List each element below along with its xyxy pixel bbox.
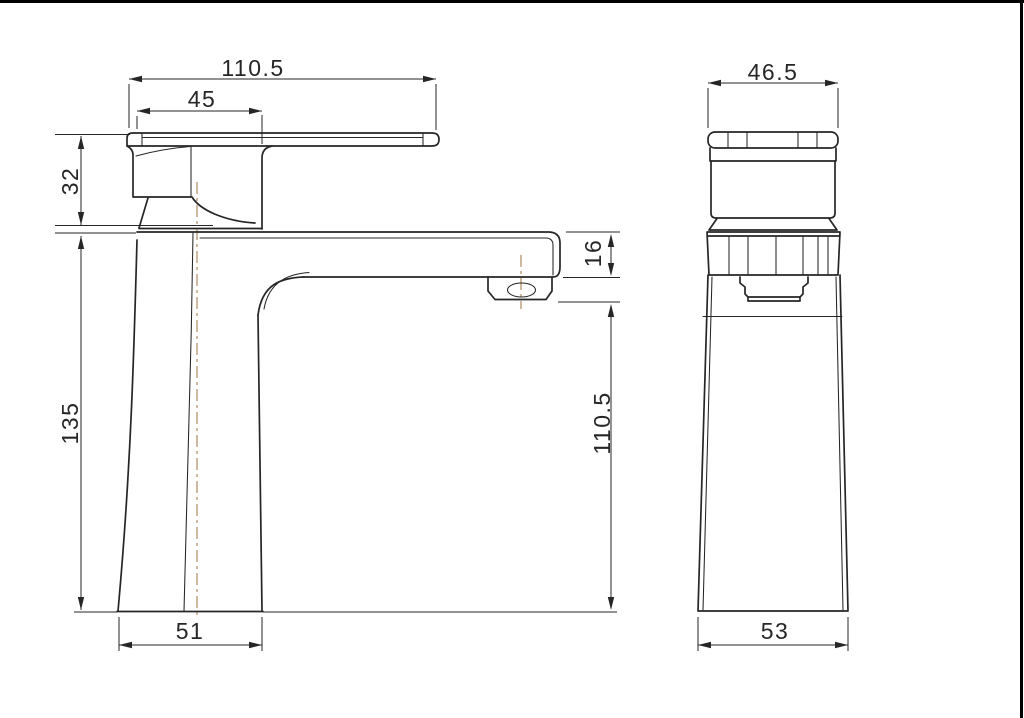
dim-arrow [423,76,436,82]
dim-arrow [78,136,84,149]
aerator-housing-outline [488,277,552,300]
side-lever-detail-lines [728,133,817,148]
dim-front-body-height-label: 135 [57,402,83,445]
dim-arrow [78,597,84,610]
dim-front-overall-width-label: 110.5 [221,55,284,81]
side-spout-ring-facets [729,236,828,275]
dim-arrow [78,212,84,225]
dim-arrow [825,80,838,86]
handle-base-right-edge [262,146,272,229]
spout-outline [137,232,560,277]
dim-arrow [119,642,132,648]
dim-arrow [137,108,150,114]
dim-front-handle-width-label: 45 [188,86,217,112]
handle-lever-detail-lines [142,133,423,146]
dim-arrow [708,80,721,86]
dim-side-overall-width-lines [708,83,838,128]
handle-lever-outline [127,133,439,146]
body-left-edge [118,240,137,611]
side-spout-recess [740,277,808,301]
handle-base-contour-lines [136,146,191,197]
drawing-sheet: 110.5 45 32 135 16 110.5 51 [0,0,1024,718]
cartridge-dome-outline [139,198,262,229]
body-right-edge [258,315,262,611]
dim-side-base-width-label: 53 [761,618,790,644]
dim-front-handle-height-label: 32 [57,167,83,196]
dim-arrow [78,236,84,249]
spout-inner-edge [200,238,553,275]
dim-front-base-width-label: 51 [176,618,205,644]
body-front-contour [184,233,193,611]
dim-arrow [608,304,614,317]
dim-front-spout-to-base-label: 110.5 [589,391,615,454]
faucet-dimension-drawing: 110.5 45 32 135 16 110.5 51 [0,0,1024,718]
dim-side-overall-width-label: 46.5 [748,59,799,85]
dim-arrow [698,642,711,648]
spout-fillet-outer [258,277,303,315]
dim-arrow [608,263,614,276]
side-handle-top-band [710,148,836,161]
dim-arrow [249,642,262,648]
side-body-inner-edges [703,277,843,610]
dim-arrow [249,108,262,114]
sheet-border-top [0,0,1024,3]
dim-arrow [608,234,614,247]
front-view [117,133,617,616]
dim-front-handle-width-lines [137,111,262,144]
sheet-border-right [1020,0,1023,718]
dim-arrow [835,642,848,648]
side-transition-collar [709,219,837,231]
dim-arrow [129,76,142,82]
dim-arrow [608,597,614,610]
spout-fillet-inner [264,273,309,310]
side-view [698,132,848,611]
dim-front-spout-thickness-label: 16 [580,239,606,268]
side-handle-block [711,161,835,218]
side-body-outline [698,275,848,611]
side-spout-ring [707,232,840,275]
dimensions: 110.5 45 32 135 16 110.5 51 [55,55,848,651]
dim-front-overall-width-lines [129,79,436,130]
